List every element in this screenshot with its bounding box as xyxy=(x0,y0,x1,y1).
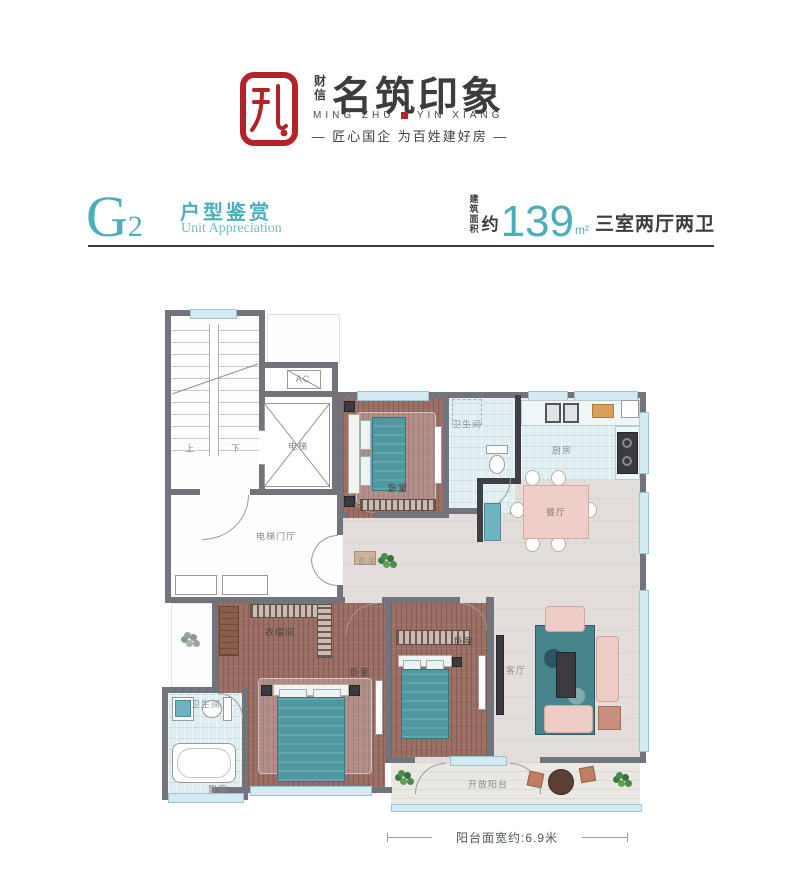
room-label-bedroom-second: 卧室 xyxy=(454,635,474,648)
brand-latin: MING ZHU YIN XIANG xyxy=(313,110,513,121)
room-label-living: 客厅 xyxy=(506,664,526,677)
area-info: 建筑 面积 约 139 m² 三室两厅两卫 xyxy=(500,192,715,242)
brand-tagline: — 匠心国企 为百姓建好房 — xyxy=(300,126,520,145)
brand-red-square-icon xyxy=(401,112,408,119)
area-value: 139 xyxy=(501,202,574,242)
area-prefix: 建筑 面积 xyxy=(470,194,479,234)
room-label-ac: AC xyxy=(296,374,311,384)
room-label-stair-down: 下 xyxy=(231,442,241,455)
floorplan-drawing: 阳台面宽约:6.9米 AC上下电梯电梯门厅卧室卫生间厨房餐厅玄关客厅衣帽间卧室卧… xyxy=(160,300,655,860)
section-title-en: Unit Appreciation xyxy=(181,221,282,237)
plan-labels-layer: AC上下电梯电梯门厅卧室卫生间厨房餐厅玄关客厅衣帽间卧室卧室卫生间飘窗开放阳台 xyxy=(160,300,655,860)
floorplan-page: 财信 名筑印象 MING ZHU YIN XIANG — 匠心国企 为百姓建好房… xyxy=(0,0,800,888)
room-label-bath-south: 卫生间 xyxy=(191,698,221,711)
room-label-bay-window: 飘窗 xyxy=(208,783,228,796)
room-label-bedroom-north: 卧室 xyxy=(388,482,408,495)
area-unit: m² xyxy=(575,223,589,237)
room-label-dining: 餐厅 xyxy=(546,506,566,519)
layout-description: 三室两厅两卫 xyxy=(595,209,715,236)
room-label-kitchen: 厨房 xyxy=(552,444,572,457)
brand-seal-icon xyxy=(240,72,298,146)
brand-latin-left: MING ZHU xyxy=(313,110,394,121)
brand-latin-right: YIN XIANG xyxy=(417,110,504,121)
room-label-bedroom-master: 卧室 xyxy=(350,666,370,679)
room-label-foyer: 玄关 xyxy=(357,555,377,568)
room-label-elevator-lobby: 电梯门厅 xyxy=(256,530,296,543)
area-approx: 约 xyxy=(482,210,499,235)
room-label-cloakroom: 衣帽间 xyxy=(265,626,295,639)
header-divider xyxy=(88,245,714,247)
brand-subname: 财信 xyxy=(311,74,329,102)
room-label-balcony: 开放阳台 xyxy=(468,778,508,791)
room-label-stair-up: 上 xyxy=(185,442,195,455)
room-label-elevator: 电梯 xyxy=(288,440,308,453)
room-label-bath-north: 卫生间 xyxy=(452,418,482,431)
unit-code: G2 xyxy=(86,188,143,246)
